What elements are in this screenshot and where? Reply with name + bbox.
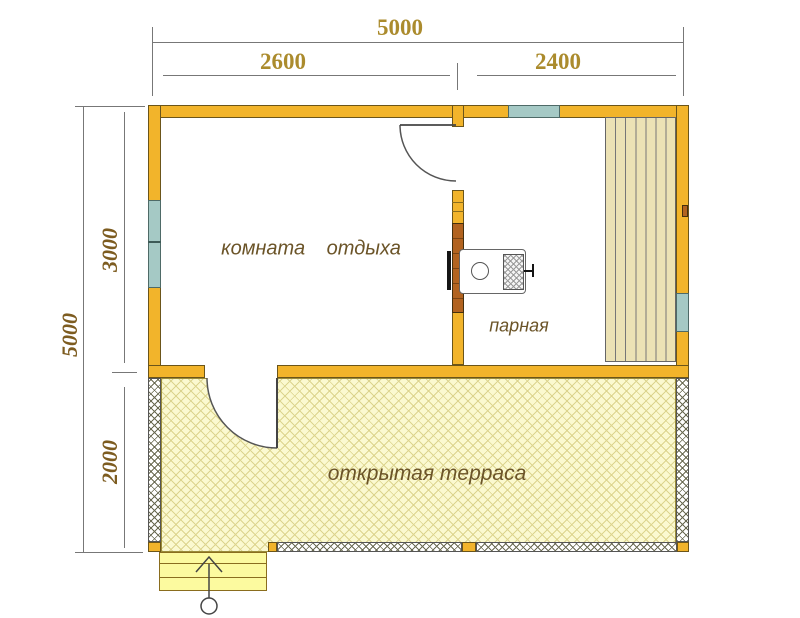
dim-left-total-line — [83, 106, 84, 553]
dim-left-tick-middle — [112, 372, 137, 373]
stove-stones-compartment — [503, 254, 524, 290]
dim-top-tick-right — [683, 27, 684, 96]
dim-top-total-line — [152, 42, 683, 43]
dim-top-seg2-value: 2400 — [535, 49, 581, 75]
dim-top-seg1-line — [163, 75, 450, 76]
entry-point-circle — [201, 598, 217, 614]
label-steam-room: парная — [489, 316, 548, 337]
floor-plan-canvas: комната отдыха парная открытая терраса 5… — [0, 0, 800, 618]
steam-room-door-arc — [400, 125, 456, 181]
dim-top-tick-left — [152, 27, 153, 96]
dim-left-seg2-value: 2000 — [97, 440, 123, 484]
dim-left-seg1-line — [124, 112, 125, 363]
stove-burner-circle — [471, 262, 489, 280]
dim-top-seg1-value: 2600 — [260, 49, 306, 75]
doors-and-arrow-overlay — [0, 0, 800, 618]
label-terrace: открытая терраса — [328, 462, 527, 486]
stove-firebox-door — [447, 251, 451, 290]
terrace-door-swing-fill — [207, 378, 277, 448]
stove-handle-bar — [532, 264, 534, 277]
dim-left-tick-top — [75, 106, 145, 107]
dim-left-total-value: 5000 — [57, 313, 83, 357]
dim-top-total-value: 5000 — [377, 15, 423, 41]
dim-top-tick-middle — [457, 63, 458, 90]
dim-left-seg2-line — [124, 387, 125, 548]
dim-top-seg2-line — [477, 75, 676, 76]
dim-left-seg1-value: 3000 — [97, 228, 123, 272]
label-rest-room: комната отдыха — [221, 238, 401, 261]
dim-left-tick-bottom — [75, 552, 143, 553]
